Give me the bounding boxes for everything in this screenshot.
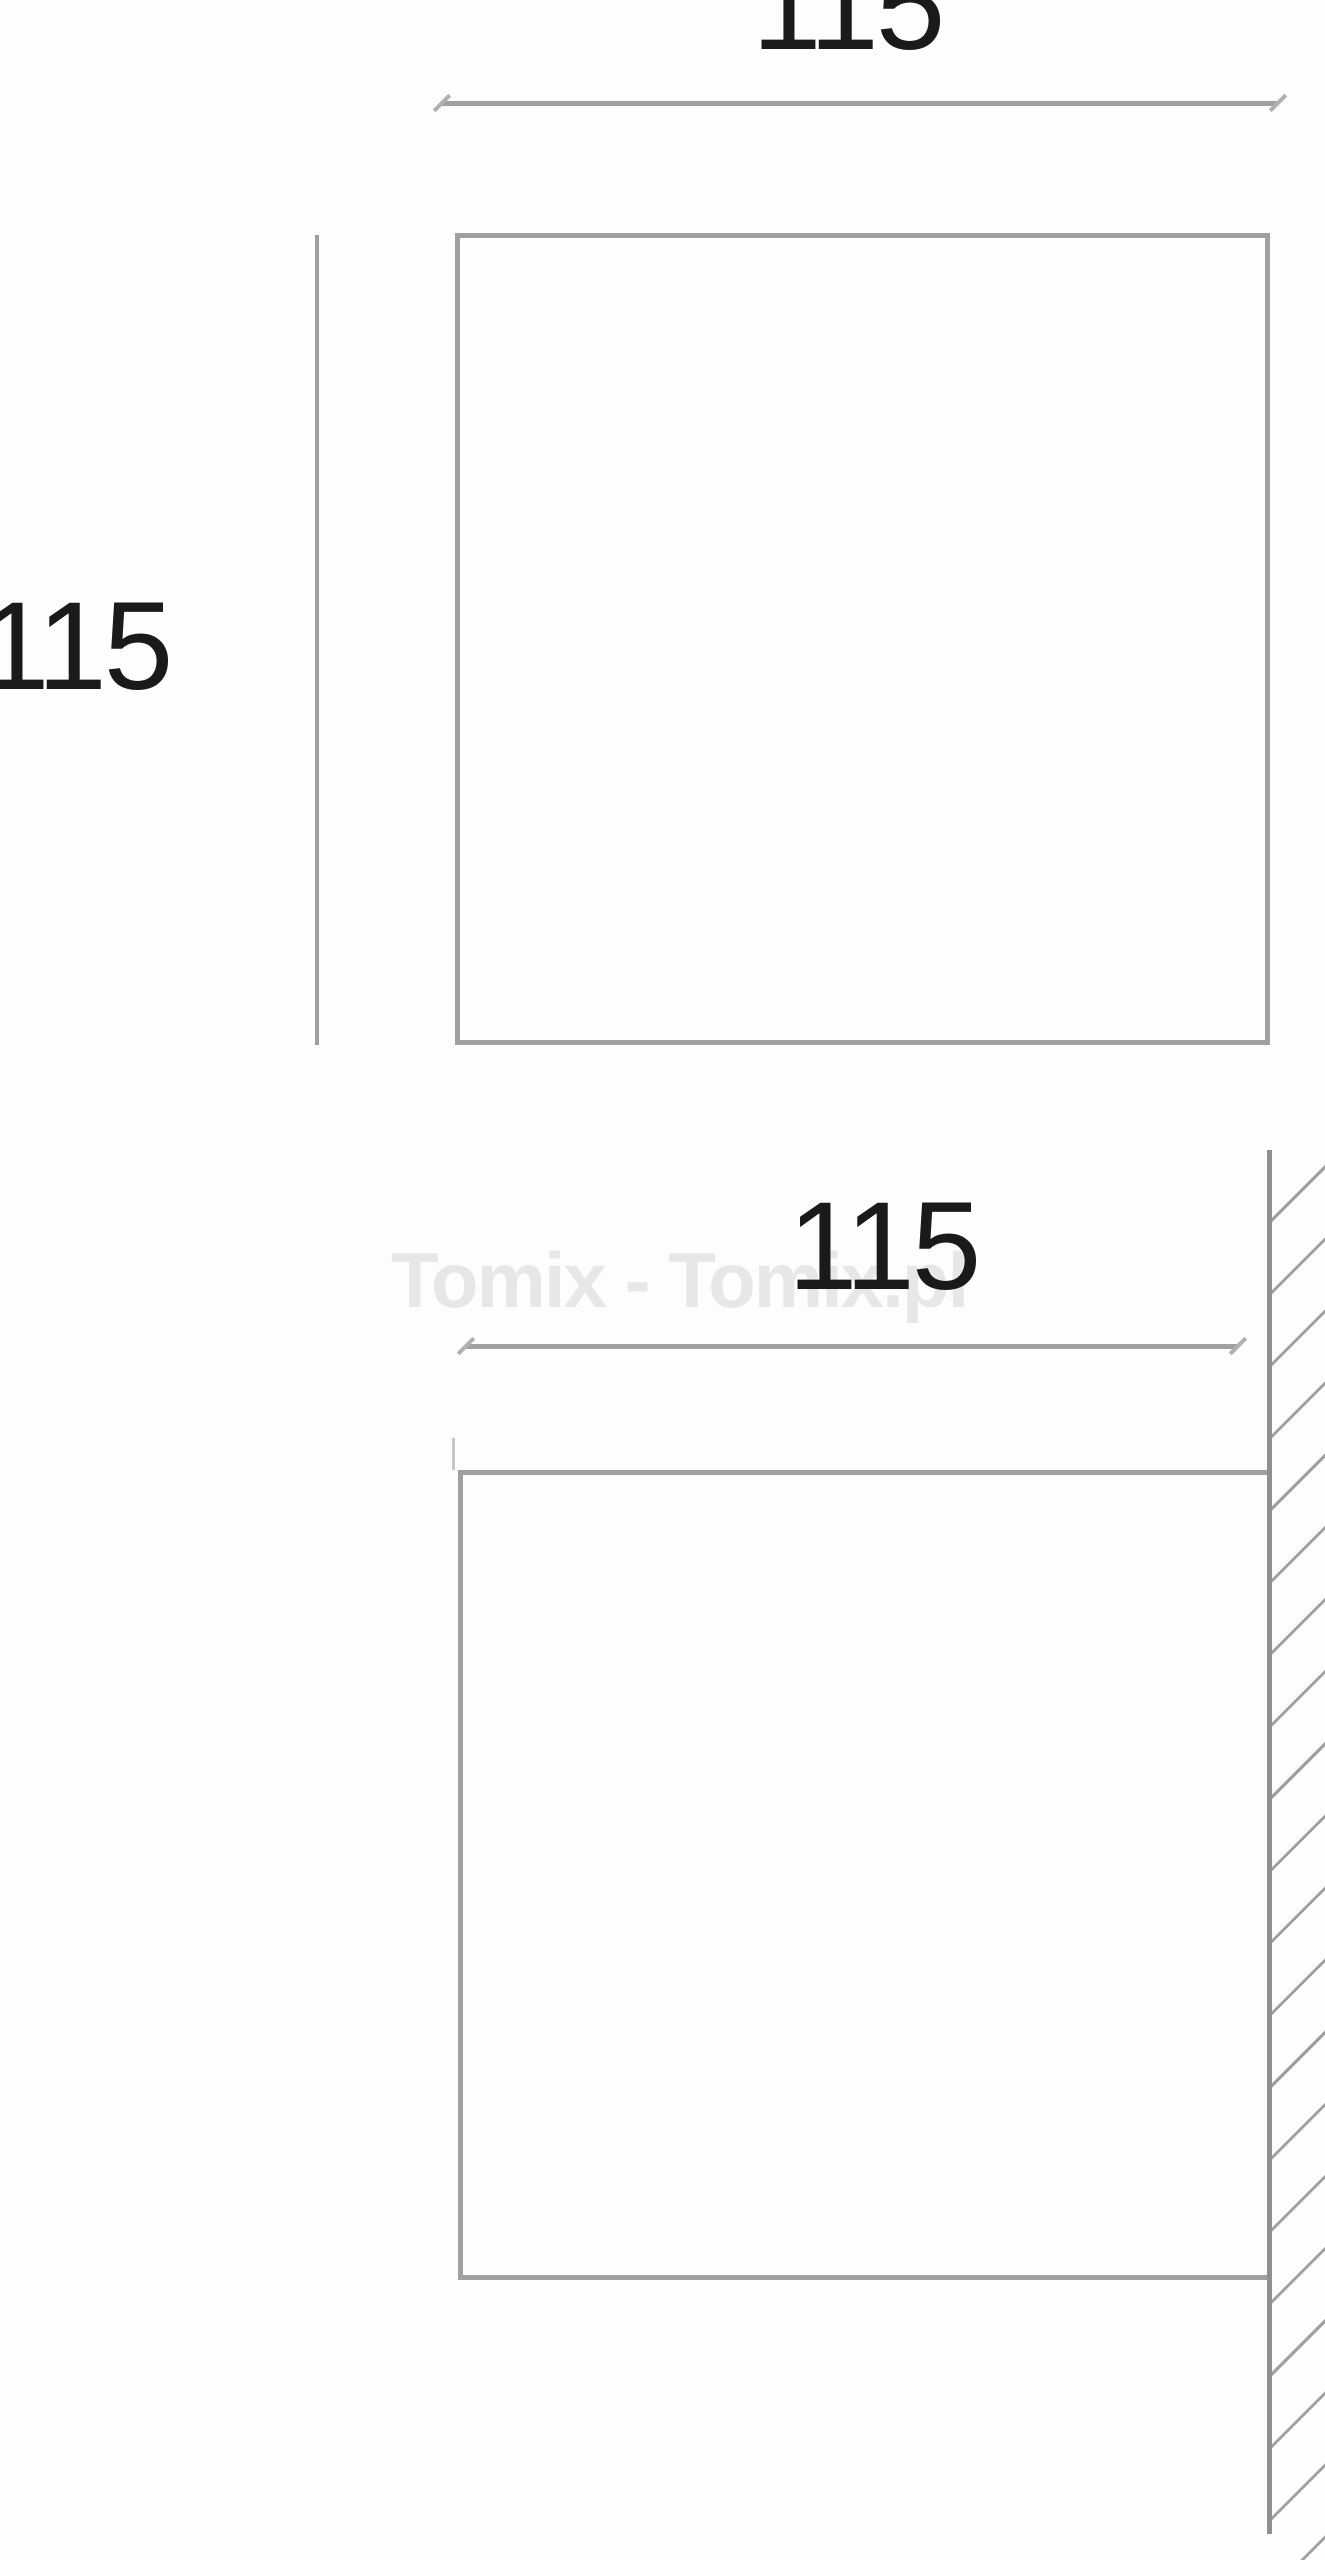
wall-section-hatch — [1272, 1150, 1325, 2560]
side-width-dim-line — [466, 1344, 1238, 1349]
extension-line-stub — [452, 1438, 455, 1470]
technical-drawing: 115 115 Tomix - Tomix.pl 115 — [0, 0, 1325, 2560]
front-width-dim-line — [442, 101, 1278, 106]
front-height-dim-line — [315, 235, 319, 1045]
side-view-outline — [458, 1470, 1272, 2280]
front-width-dim-label: 115 — [752, 0, 942, 69]
side-width-dim-label: 115 — [788, 1184, 978, 1309]
front-view-outline — [455, 233, 1270, 1045]
front-height-dim-label: 115 — [0, 584, 170, 709]
